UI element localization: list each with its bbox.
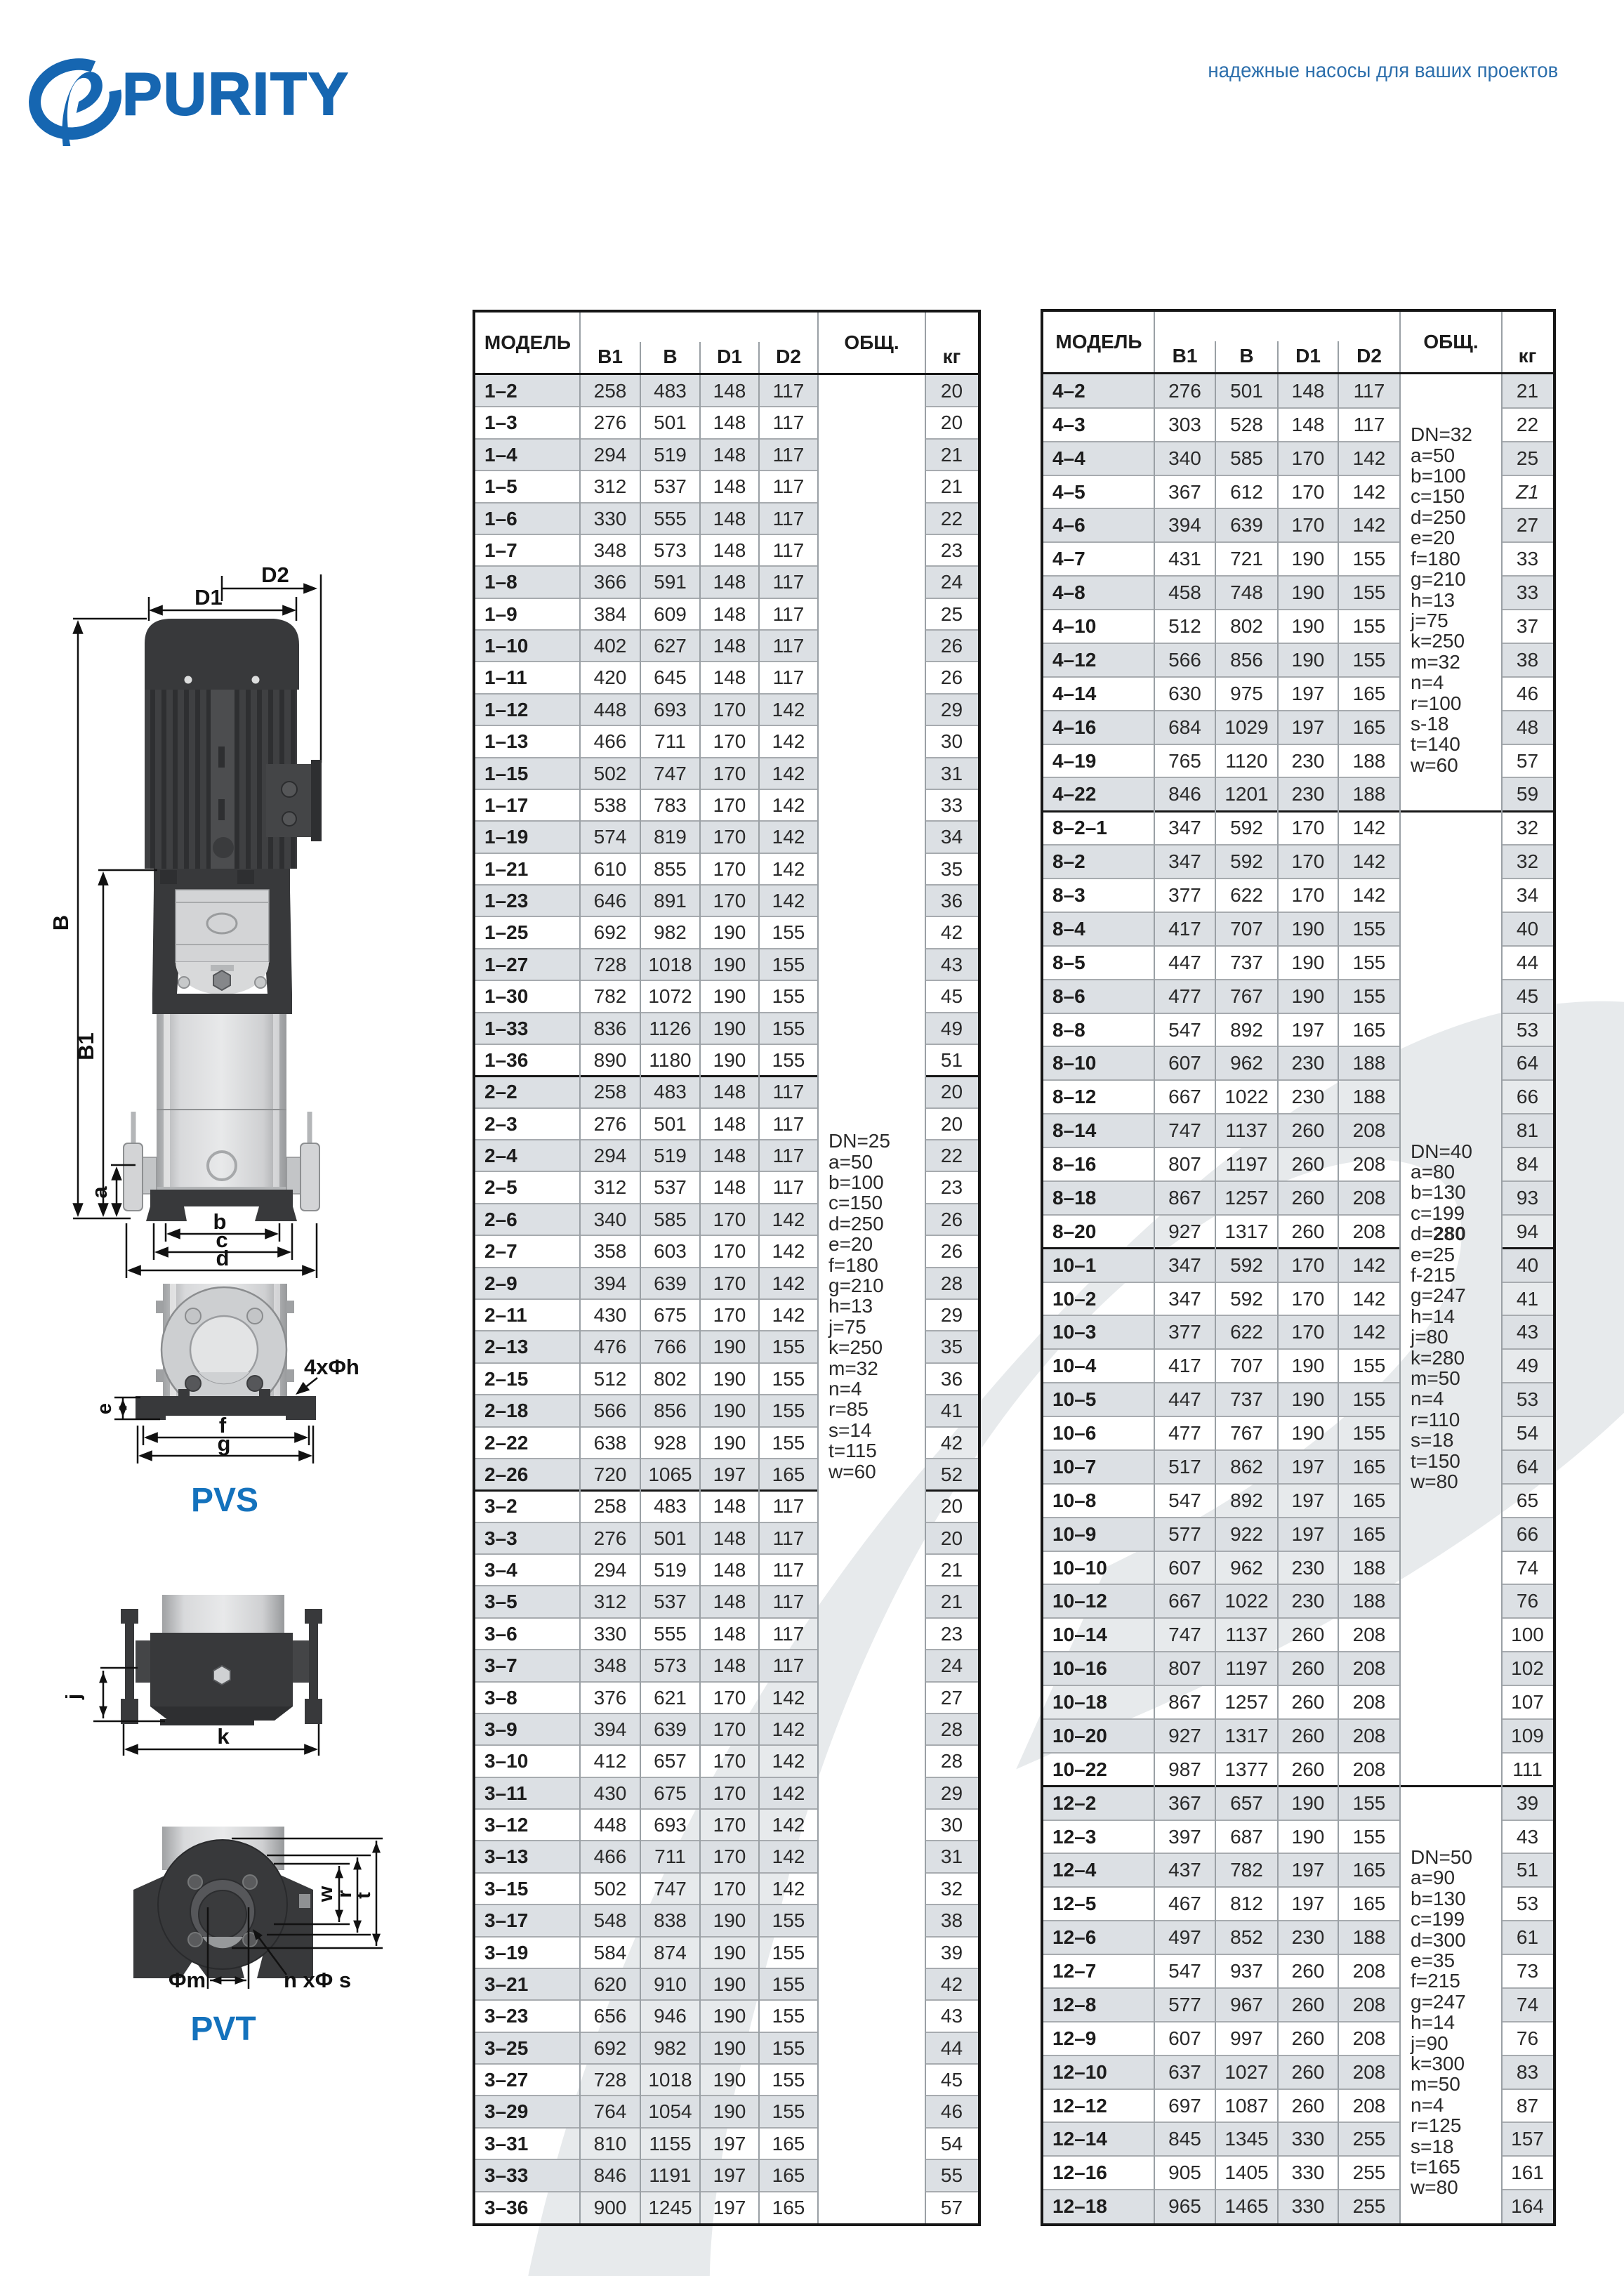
- svg-text:g: g: [218, 1431, 231, 1456]
- svg-text:k: k: [217, 1724, 230, 1749]
- svg-text:PVT: PVT: [190, 2011, 256, 2048]
- svg-text:t: t: [352, 1892, 375, 1899]
- svg-text:B: B: [48, 915, 73, 930]
- svg-text:4xΦh: 4xΦh: [304, 1355, 359, 1379]
- svg-text:Φm: Φm: [169, 1968, 206, 1992]
- svg-text:a: a: [87, 1186, 112, 1199]
- svg-text:B1: B1: [74, 1032, 98, 1060]
- svg-text:n xΦ s: n xΦ s: [284, 1968, 351, 1992]
- svg-text:d: d: [216, 1246, 230, 1270]
- svg-text:e: e: [93, 1403, 116, 1414]
- svg-text:PVS: PVS: [191, 1482, 258, 1519]
- svg-text:j: j: [62, 1694, 85, 1700]
- svg-text:D2: D2: [261, 563, 289, 587]
- svg-text:D1: D1: [194, 585, 223, 610]
